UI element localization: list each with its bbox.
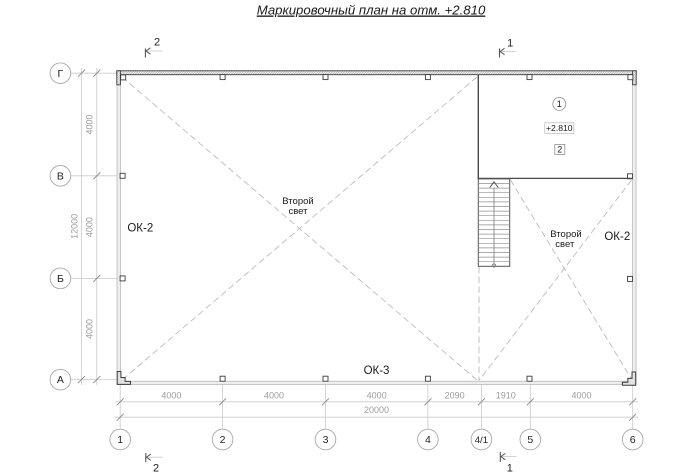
svg-text:4: 4 [425,434,431,446]
svg-text:свет: свет [288,206,308,217]
svg-text:5: 5 [527,434,533,446]
svg-text:В: В [57,170,64,182]
svg-text:4/1: 4/1 [475,435,488,446]
svg-text:4000: 4000 [264,391,284,401]
svg-text:ОК-3: ОК-3 [364,365,390,377]
svg-text:2: 2 [557,144,562,154]
svg-text:4000: 4000 [85,114,95,134]
svg-text:свет: свет [555,239,575,250]
svg-text:1: 1 [557,99,562,109]
svg-text:6: 6 [630,434,636,446]
svg-text:ОК-2: ОК-2 [127,223,153,235]
svg-text:4000: 4000 [367,391,387,401]
svg-text:12000: 12000 [70,214,80,239]
svg-text:1: 1 [507,37,513,49]
svg-text:1910: 1910 [496,391,516,401]
svg-text:ОК-2: ОК-2 [604,231,630,243]
svg-text:3: 3 [323,434,329,446]
svg-text:2090: 2090 [445,391,465,401]
svg-text:20000: 20000 [364,405,389,415]
svg-text:+2.810: +2.810 [546,123,573,133]
svg-text:2: 2 [220,434,226,446]
svg-text:4000: 4000 [85,217,95,237]
svg-text:2: 2 [154,37,160,49]
svg-text:Г: Г [58,68,64,80]
svg-text:1: 1 [117,434,123,446]
svg-text:Б: Б [57,273,64,285]
svg-text:4000: 4000 [85,319,95,339]
svg-text:Маркировочный план на отм. +2.: Маркировочный план на отм. +2.810 [257,3,486,18]
svg-text:2: 2 [153,462,159,474]
svg-text:4000: 4000 [571,391,591,401]
svg-text:А: А [57,374,64,386]
svg-text:4000: 4000 [161,391,181,401]
svg-text:1: 1 [507,462,513,474]
